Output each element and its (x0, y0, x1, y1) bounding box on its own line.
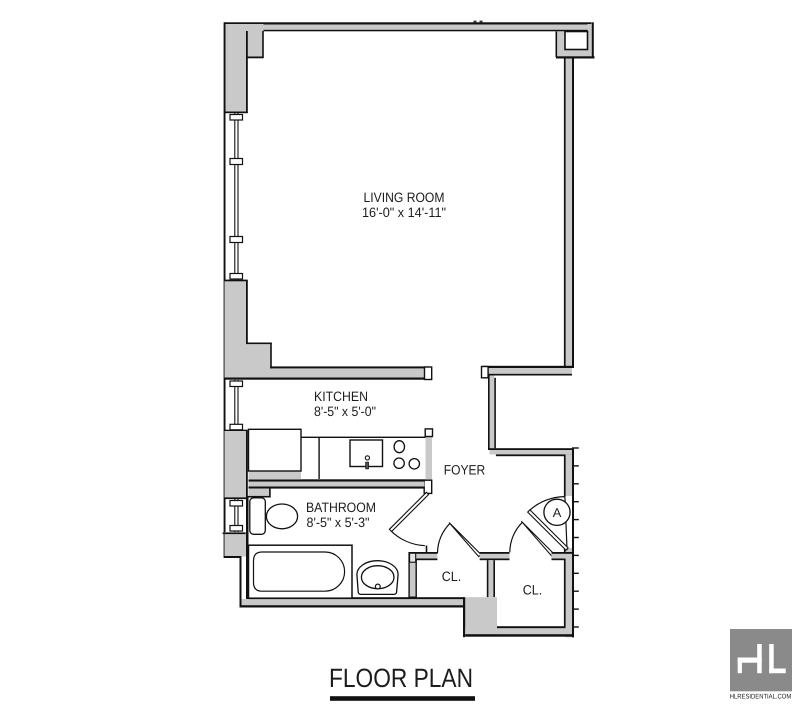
svg-text:FLOOR PLAN: FLOOR PLAN (329, 663, 473, 693)
svg-text:KITCHEN: KITCHEN (314, 389, 368, 404)
svg-text:8'-5" x 5'-3": 8'-5" x 5'-3" (307, 515, 370, 530)
svg-text:16'-0" x 14'-11": 16'-0" x 14'-11" (362, 205, 446, 220)
svg-text:LIVING ROOM: LIVING ROOM (364, 190, 445, 205)
svg-text:8'-5" x 5'-0": 8'-5" x 5'-0" (314, 404, 376, 419)
svg-text:CL.: CL. (523, 583, 543, 598)
svg-text:BATHROOM: BATHROOM (306, 500, 376, 515)
svg-text:HLRESIDENTIAL.COM: HLRESIDENTIAL.COM (730, 694, 792, 701)
svg-text:CL.: CL. (442, 569, 462, 584)
svg-text:FOYER: FOYER (444, 463, 486, 478)
svg-text:A: A (553, 505, 562, 520)
